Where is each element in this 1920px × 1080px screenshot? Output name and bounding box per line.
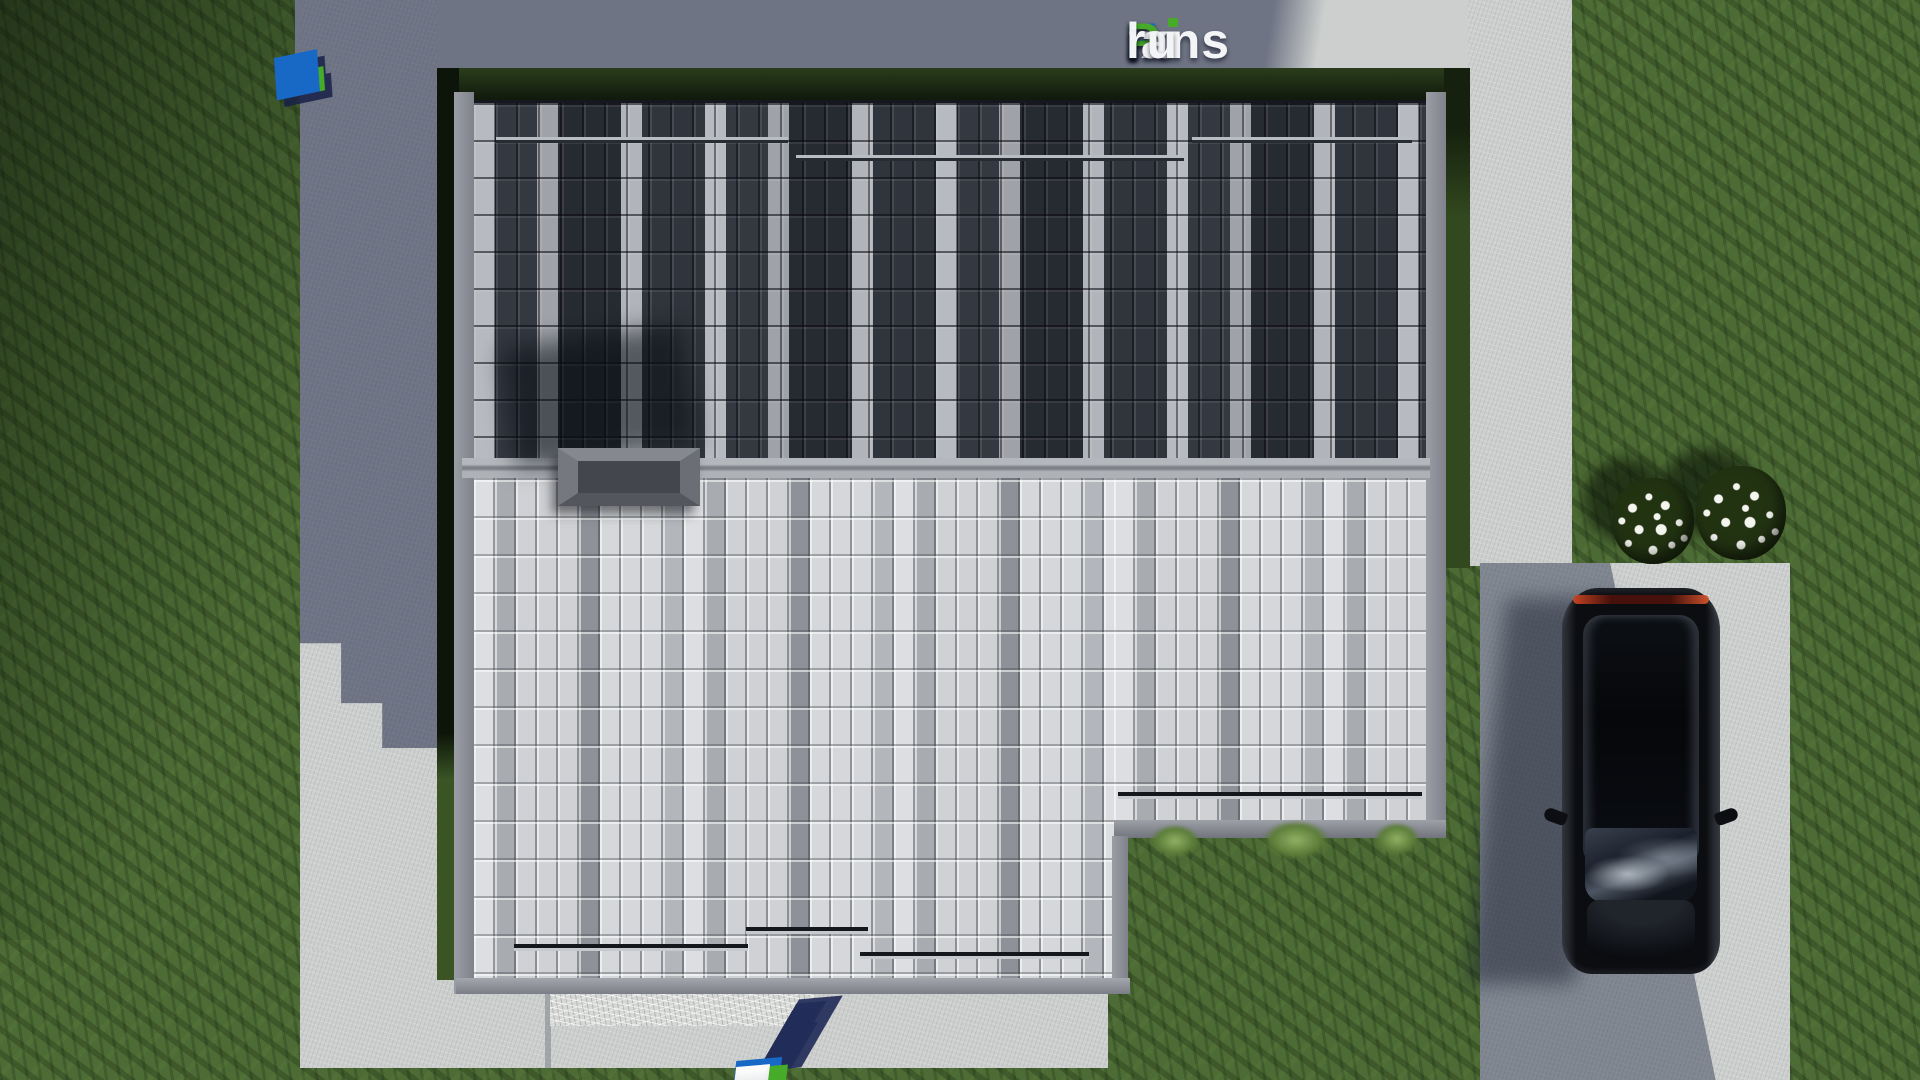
roof-section-light-right <box>1114 478 1426 822</box>
shaded-lawn-gap-top <box>437 68 1469 102</box>
brand-i-dot <box>1168 18 1178 27</box>
house-shadow-on-walkway <box>300 0 437 748</box>
chimney-shadow <box>501 324 698 468</box>
roof-section-light-main <box>474 478 1114 980</box>
car-hood <box>1587 900 1695 964</box>
walkway-right <box>1468 0 1572 566</box>
snow-guard-bar <box>1118 792 1422 799</box>
roof-fascia-left <box>454 92 474 994</box>
shaded-lawn-gap-right <box>1444 68 1470 568</box>
shrub-tuft <box>1262 820 1330 860</box>
house-shadow-on-lawn <box>0 0 340 940</box>
flower-bush <box>1612 478 1694 564</box>
car-windshield <box>1585 828 1697 902</box>
snow-guard-bar <box>1192 137 1412 143</box>
car-roof-glass <box>1583 615 1699 863</box>
watermark-face <box>733 1068 766 1080</box>
car-taillight-bar <box>1573 595 1709 604</box>
walkway-left <box>300 0 437 958</box>
watermark-block <box>274 49 320 100</box>
snow-guard-bar <box>514 944 748 951</box>
shrub-tuft <box>1374 822 1420 856</box>
snow-guard-bar <box>496 137 788 143</box>
parked-suv <box>1562 588 1720 974</box>
flower-bush <box>1696 466 1786 560</box>
snow-guard-bar <box>746 927 868 934</box>
snow-guard-bar <box>796 155 1184 161</box>
shrub-tuft <box>1150 824 1200 858</box>
aerial-house-render: FixPlans.ru <box>0 0 1920 1080</box>
chimney-cap <box>558 448 700 506</box>
